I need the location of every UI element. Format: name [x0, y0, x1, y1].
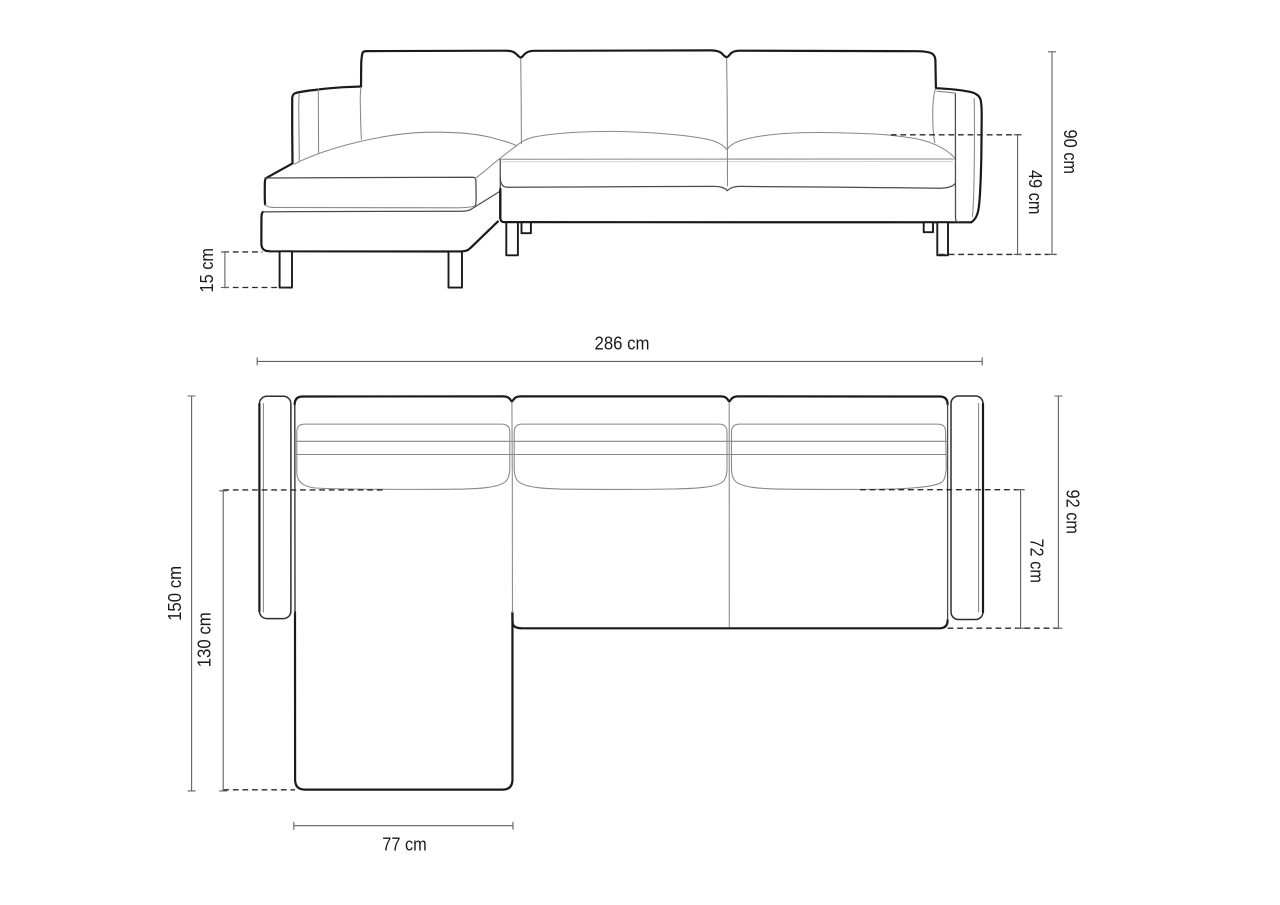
- svg-text:150 cm: 150 cm: [165, 566, 185, 621]
- svg-text:72 cm: 72 cm: [1026, 538, 1046, 583]
- svg-text:15 cm: 15 cm: [197, 248, 217, 293]
- svg-text:77 cm: 77 cm: [382, 835, 427, 855]
- svg-text:92 cm: 92 cm: [1062, 490, 1082, 535]
- svg-text:90 cm: 90 cm: [1060, 130, 1080, 175]
- svg-text:286 cm: 286 cm: [595, 334, 650, 354]
- svg-text:49 cm: 49 cm: [1025, 170, 1045, 215]
- svg-text:130 cm: 130 cm: [195, 612, 215, 667]
